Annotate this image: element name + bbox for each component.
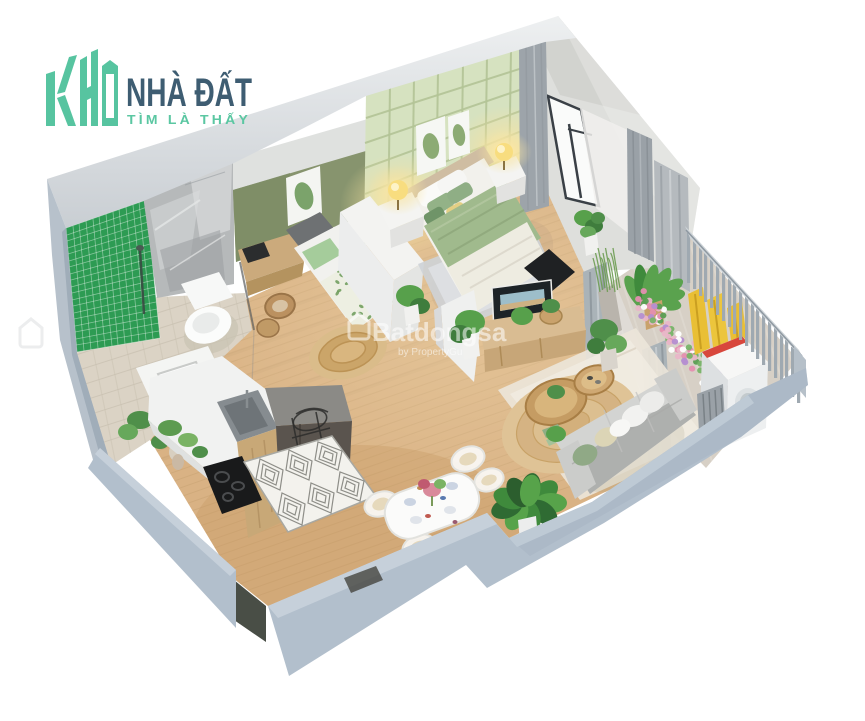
svg-text:Batdongsa: Batdongsa	[372, 317, 507, 347]
svg-text:NHÀ ĐẤT: NHÀ ĐẤT	[126, 69, 252, 115]
svg-text:by PropertyGu: by PropertyGu	[398, 347, 462, 358]
svg-text:TÌM LÀ THẤY: TÌM LÀ THẤY	[127, 112, 251, 127]
